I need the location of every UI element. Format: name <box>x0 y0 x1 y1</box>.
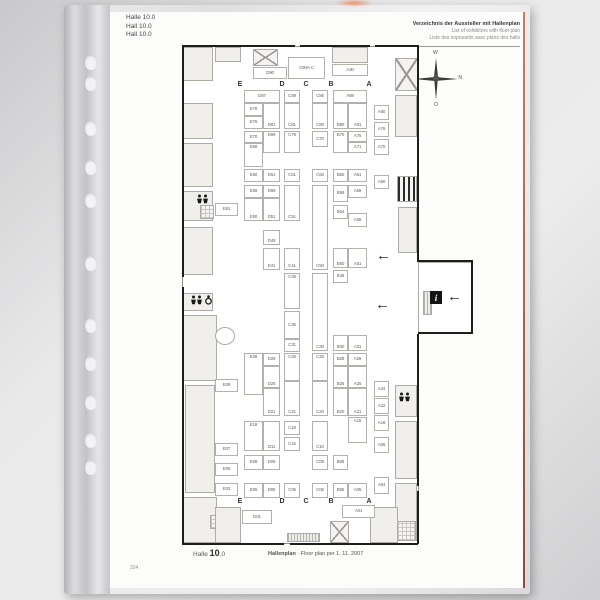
booth-E70: E70 <box>244 131 263 143</box>
booth-A31: A31 <box>348 335 367 351</box>
booth-C21: C21 <box>284 381 300 416</box>
punch-hole <box>85 460 97 475</box>
booth-A51: A51 <box>348 248 367 268</box>
aisle-letter-E: E <box>238 81 243 88</box>
booth-D29: D29 <box>263 353 280 366</box>
booth-label: C61 <box>288 173 296 178</box>
structure-bars <box>397 176 417 202</box>
structure-room <box>398 207 417 253</box>
booth-C29: C29 <box>284 353 300 381</box>
structure-room <box>183 227 213 275</box>
booth-A76: A76 <box>374 122 389 137</box>
booth-C30: C30 <box>312 273 328 351</box>
booth-E05: E05 <box>215 463 238 476</box>
booth-label: A22 <box>378 404 385 409</box>
booth-D25: D25 <box>263 366 280 388</box>
booth-label: D41 <box>268 264 276 269</box>
booth-C20: C20 <box>312 381 328 416</box>
booth-E60: E60 <box>244 169 263 182</box>
structure-x <box>395 58 418 91</box>
booth-A06: A06 <box>374 437 389 453</box>
structure-room <box>332 47 368 63</box>
structure-hatch <box>287 533 320 542</box>
booth-label: D09 <box>268 460 276 465</box>
aisle-letter-A: A <box>366 498 371 505</box>
booth-label: B54 <box>337 210 344 215</box>
booth-label: E61 <box>223 207 230 212</box>
booth-D01: D01 <box>242 510 272 524</box>
booth-B20: B20 <box>333 388 348 416</box>
booth-label: A24 <box>378 387 385 392</box>
booth-E09: E09 <box>215 379 238 392</box>
wall-segment <box>300 45 370 47</box>
booth-label: E58 <box>250 189 257 194</box>
booth-label: E05 <box>223 467 230 472</box>
punch-hole <box>85 395 97 410</box>
booth-label: A31 <box>354 345 361 350</box>
booth-A70: A70 <box>374 139 389 155</box>
punch-hole <box>85 318 97 333</box>
booth-E06: E06 <box>244 483 263 498</box>
booth-label: C08 <box>316 460 324 465</box>
booth-label: A15 <box>354 419 361 424</box>
structure-grid <box>397 521 416 541</box>
booth-C89: C89 <box>284 90 300 103</box>
booth-label: C50 <box>316 264 324 269</box>
wall-segment <box>375 45 418 47</box>
booth-A04: A04 <box>374 477 389 494</box>
booth-B50: B50 <box>333 248 348 268</box>
booth-label: C30 <box>316 345 324 350</box>
booth-D81: D81 <box>263 103 280 129</box>
booth-C61: C61 <box>284 169 300 182</box>
booth-label: A04 <box>378 483 385 488</box>
booth-label: E09 <box>223 383 230 388</box>
booth-A24: A24 <box>374 381 389 397</box>
booth-label: E78 <box>250 107 257 112</box>
booth-label: C81 <box>288 123 296 128</box>
booth-label: A29 <box>354 357 361 362</box>
paper-sheet: Halle 10.0 Hall 10.0 Hall 10.0 Verzeichn… <box>110 12 523 588</box>
booth-B70: B70 <box>333 131 348 153</box>
booth-label: C06 <box>316 488 324 493</box>
booth-C28: C28 <box>312 353 328 381</box>
structure-room <box>185 385 215 493</box>
booth-D41: D41 <box>263 248 280 270</box>
booth-label: A51 <box>354 262 361 267</box>
booth-D87: D87 <box>244 90 280 103</box>
booth-label: E76 <box>250 120 257 125</box>
structure-room <box>183 315 217 381</box>
booth-C06: C06 <box>312 483 328 498</box>
booth-E50: E50 <box>244 198 263 221</box>
wall-segment <box>182 543 284 545</box>
booth-B28: B28 <box>333 353 348 366</box>
booth-label: B60 <box>337 173 344 178</box>
booth-A75: A75 <box>348 131 367 142</box>
booth-C70: C70 <box>312 131 328 147</box>
booth-label: A18 <box>378 421 385 426</box>
booth-B54: B54 <box>333 205 348 219</box>
booth-C50: C50 <box>312 185 328 270</box>
booth-label: C15 <box>288 442 296 447</box>
booth-D61: D61 <box>263 169 280 182</box>
booth-label: C28 <box>316 355 324 360</box>
booth-E03: E03 <box>215 483 238 496</box>
booth-A01: A01 <box>342 505 375 518</box>
structure-circle <box>215 327 235 345</box>
booth-E08: E08 <box>244 455 263 470</box>
booth-label: D11 <box>268 445 275 450</box>
booth-label: B80 <box>337 123 344 128</box>
booth-label: B58 <box>337 191 344 196</box>
directory-title-fr: Liste des exposants avec plans des halls <box>413 35 520 42</box>
wall-segment <box>418 260 472 262</box>
booth-E61: E61 <box>215 203 238 216</box>
booth-label: C39 <box>288 275 296 280</box>
booth-A25: A25 <box>348 366 367 388</box>
booth-label: B48 <box>337 274 344 279</box>
aisle-letter-A: A <box>366 81 371 88</box>
booth-D49: D49 <box>263 230 280 245</box>
aisle-letter-B: B <box>328 498 333 505</box>
booth-label: A71 <box>354 145 361 150</box>
booth-label: C29 <box>288 355 296 360</box>
booth-A80: A80 <box>374 105 389 120</box>
booth-label: A61 <box>354 173 361 178</box>
booth-label: A30 <box>346 68 353 73</box>
booth-A21: A21 <box>348 388 367 416</box>
booth-label: E28 <box>250 355 257 360</box>
structure-x <box>253 49 278 66</box>
booth-A30: A30 <box>332 64 368 76</box>
wall-segment <box>182 45 184 277</box>
booth-D21: D21 <box>263 388 280 416</box>
booth-label: A06 <box>378 443 385 448</box>
booth-label: C89 <box>288 94 296 99</box>
booth-A29: A29 <box>348 353 367 366</box>
booth-C90A-C: C90A-C <box>288 57 325 79</box>
booth-C81: C81 <box>284 103 300 129</box>
footer-hall-label: Halle <box>193 551 208 558</box>
booth-label: D25 <box>268 382 276 387</box>
booth-label: D49 <box>268 239 276 244</box>
booth-C51: C51 <box>284 185 300 221</box>
booth-label: D29 <box>268 357 276 362</box>
booth-label: E03 <box>223 487 230 492</box>
booth-label: C80 <box>316 123 324 128</box>
booth-label: A55 <box>354 218 361 223</box>
footer-hall-number: 10 <box>210 548 220 558</box>
arrow-left-icon: ← <box>376 251 391 261</box>
paper-edge <box>523 12 525 588</box>
hall-title-fr: Hall 10.0 <box>126 31 155 40</box>
booth-label: B50 <box>337 262 344 267</box>
punch-hole <box>85 433 97 448</box>
booth-A71: A71 <box>348 142 367 153</box>
booth-label: A76 <box>378 127 385 132</box>
booth-label: D81 <box>268 123 276 128</box>
footer-hall-suffix: .0 <box>220 551 225 558</box>
booth-A89: A89 <box>333 90 367 103</box>
wc-icon <box>398 392 411 402</box>
booth-C15: C15 <box>284 437 300 451</box>
booth-label: B28 <box>337 357 344 362</box>
booth-label: E07 <box>223 447 230 452</box>
binding-strip <box>64 5 110 594</box>
wall-segment <box>417 45 419 262</box>
booth-label: A80 <box>378 110 385 115</box>
booth-label: D21 <box>268 410 276 415</box>
booth-label: E06 <box>250 488 257 493</box>
structure-room <box>183 103 213 139</box>
booth-label: A70 <box>378 145 385 150</box>
structure-room <box>215 507 241 543</box>
booth-label: A05 <box>354 488 361 493</box>
booth-label: E60 <box>250 173 257 178</box>
booth-label: C19 <box>288 426 296 431</box>
aisle-letter-B: B <box>328 81 333 88</box>
booth-C60: C60 <box>312 169 328 182</box>
hall-title-de: Halle 10.0 <box>126 14 155 23</box>
booth-D69: D69 <box>263 131 280 153</box>
wall-segment <box>290 543 418 545</box>
booth-label: D69 <box>268 133 276 138</box>
wc-icon <box>196 194 209 204</box>
booth-C80: C80 <box>312 103 328 129</box>
footer-hall: Halle 10.0 <box>193 548 225 558</box>
aisle-letter-D: D <box>279 498 284 505</box>
booth-label: E50 <box>250 215 257 220</box>
orange-tab <box>336 0 372 6</box>
booth-A81: A81 <box>348 103 367 129</box>
booth-E78: E78 <box>244 103 263 116</box>
booth-label: A01 <box>355 509 362 514</box>
booth-label: C70 <box>316 137 324 142</box>
booth-label: D01 <box>253 515 261 520</box>
wall-segment <box>417 334 419 486</box>
booth-D05: D05 <box>263 483 280 498</box>
booth-E18: E18 <box>244 421 263 451</box>
booth-C05: C05 <box>284 483 300 498</box>
booth-D09: D09 <box>263 455 280 470</box>
booth-A22: A22 <box>374 398 389 414</box>
directory-title-de: Verzeichnis der Aussteller mit Hallenpla… <box>413 21 520 28</box>
booth-label: C41 <box>288 264 296 269</box>
info-icon: i <box>430 291 442 304</box>
punch-hole <box>85 356 97 371</box>
booth-label: B20 <box>337 410 344 415</box>
booth-label: A60 <box>378 180 385 185</box>
directory-title-en: List of exhibitors with floor plan <box>413 28 520 35</box>
accessible-wc-icon <box>190 295 214 305</box>
booth-A59: A59 <box>348 185 367 198</box>
booth-A55: A55 <box>348 213 367 227</box>
booth-C31: C31 <box>284 339 300 352</box>
structure-room <box>183 143 213 187</box>
booth-label: C79 <box>288 133 296 138</box>
booth-B60: B60 <box>333 169 348 182</box>
booth-B58: B58 <box>333 185 348 202</box>
booth-C19: C19 <box>284 421 300 435</box>
structure-room <box>215 47 241 62</box>
floor-plan: D90C90A-CA30D87C89C86A89E78E76D81C81C80B… <box>170 45 474 550</box>
aisle-letter-D: D <box>279 81 284 88</box>
wall-segment <box>183 45 295 47</box>
structure-room <box>395 421 417 479</box>
booth-B80: B80 <box>333 103 348 129</box>
footer-caption: Hallenplan · Floor plan per 1. 11. 2007 <box>268 551 363 557</box>
document-photo: Halle 10.0 Hall 10.0 Hall 10.0 Verzeichn… <box>0 0 600 600</box>
booth-A60: A60 <box>374 175 389 189</box>
booth-label: B26 <box>337 382 344 387</box>
booth-label: C60 <box>316 173 324 178</box>
booth-B06: B06 <box>333 483 348 498</box>
booth-label: C35 <box>288 323 296 328</box>
structure-room <box>395 95 417 137</box>
booth-label: A89 <box>346 94 353 99</box>
booth-label: C10 <box>316 445 324 450</box>
booth-E28: E28 <box>244 353 263 395</box>
booth-label: C21 <box>288 410 296 415</box>
booth-label: D05 <box>268 488 276 493</box>
booth-label: C86 <box>316 94 324 99</box>
booth-D59: D59 <box>263 185 280 198</box>
wall-segment <box>182 287 184 544</box>
aisle-letter-C: C <box>303 81 308 88</box>
structure-room <box>183 47 213 81</box>
booth-B26: B26 <box>333 366 348 388</box>
hall-title-en: Hall 10.0 <box>126 23 155 32</box>
booth-C86: C86 <box>312 90 328 103</box>
booth-C10: C10 <box>312 421 328 451</box>
booth-label: A59 <box>354 189 361 194</box>
booth-A18: A18 <box>374 415 389 431</box>
booth-C35: C35 <box>284 311 300 339</box>
booth-label: D90 <box>266 71 274 76</box>
booth-label: E68 <box>250 145 257 150</box>
booth-label: C90A-C <box>299 66 314 71</box>
booth-label: E70 <box>250 135 257 140</box>
booth-C39: C39 <box>284 273 300 309</box>
aisle-letter-E: E <box>238 498 243 505</box>
booth-D90: D90 <box>253 67 287 79</box>
booth-C79: C79 <box>284 131 300 153</box>
booth-label: B08 <box>337 460 344 465</box>
booth-E68: E68 <box>244 143 263 167</box>
booth-E07: E07 <box>215 443 238 456</box>
aisle-letter-C: C <box>303 498 308 505</box>
punch-hole <box>85 76 97 91</box>
punch-hole <box>85 55 97 70</box>
punch-hole <box>85 256 97 271</box>
header-directory-titles: Verzeichnis der Aussteller mit Hallenpla… <box>413 21 520 42</box>
booth-A61: A61 <box>348 169 367 182</box>
booth-E58: E58 <box>244 185 263 198</box>
arrow-left-icon: ← <box>375 300 390 310</box>
booth-label: A21 <box>354 410 361 415</box>
structure-x <box>330 521 349 543</box>
booth-label: A75 <box>354 134 361 139</box>
booth-label: D59 <box>268 189 276 194</box>
booth-label: D51 <box>268 215 276 220</box>
booth-A15: A15 <box>348 417 367 443</box>
booth-label: C31 <box>288 343 296 348</box>
booth-B08: B08 <box>333 455 348 470</box>
header-hall-titles: Halle 10.0 Hall 10.0 Hall 10.0 <box>126 14 155 40</box>
booth-label: A25 <box>354 382 361 387</box>
booth-label: A81 <box>354 123 361 128</box>
punch-hole <box>85 160 97 175</box>
wall-segment <box>418 332 472 334</box>
booth-E76: E76 <box>244 116 263 129</box>
booth-label: B70 <box>337 133 344 138</box>
booth-label: C51 <box>288 215 296 220</box>
booth-B30: B30 <box>333 335 348 351</box>
arrow-left-icon: ← <box>447 292 462 302</box>
booth-label: E18 <box>250 423 257 428</box>
booth-label: B30 <box>337 345 344 350</box>
punch-hole <box>85 121 97 136</box>
footer-plan-label: Hallenplan <box>268 551 296 557</box>
footer-plan-date: · Floor plan per 1. 11. 2007 <box>297 551 363 557</box>
page-number: 324 <box>130 565 138 571</box>
booth-label: E08 <box>250 460 257 465</box>
booth-C41: C41 <box>284 248 300 270</box>
wall-segment <box>471 260 473 334</box>
booth-label: C05 <box>288 488 296 493</box>
booth-A05: A05 <box>348 483 367 498</box>
wall-segment <box>417 491 419 544</box>
punch-hole <box>85 193 97 208</box>
booth-B48: B48 <box>333 270 348 283</box>
booth-C08: C08 <box>312 455 328 470</box>
booth-D51: D51 <box>263 198 280 221</box>
booth-label: D61 <box>268 173 276 178</box>
booth-label: D87 <box>258 94 266 99</box>
booth-label: C20 <box>316 410 324 415</box>
structure-grid <box>200 205 214 219</box>
booth-D11: D11 <box>263 421 280 451</box>
booth-label: B06 <box>337 488 344 493</box>
